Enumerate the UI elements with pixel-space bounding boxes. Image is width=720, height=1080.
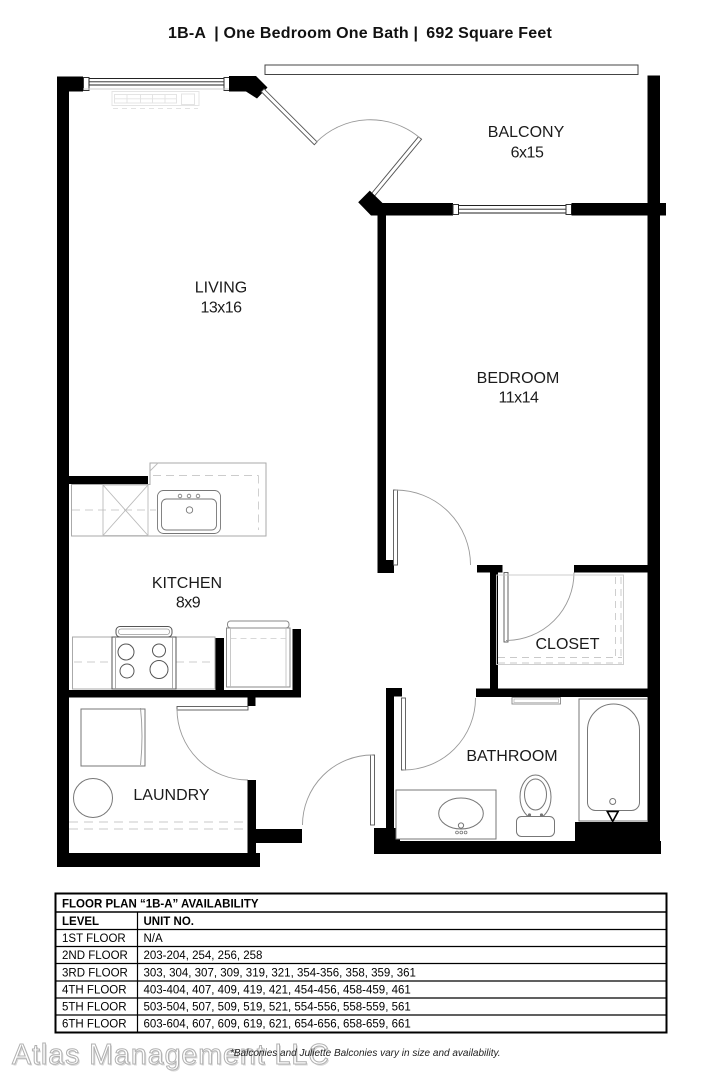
svg-text:UNIT NO.: UNIT NO. <box>144 916 194 928</box>
svg-text:603-604, 607, 609, 619, 621, 6: 603-604, 607, 609, 619, 621, 654-656, 65… <box>144 1019 411 1031</box>
svg-text:*Balconies and Juliette Balcon: *Balconies and Juliette Balconies vary i… <box>230 1048 501 1059</box>
svg-text:LAUNDRY: LAUNDRY <box>133 787 210 804</box>
svg-text:2ND FLOOR: 2ND FLOOR <box>62 950 128 962</box>
svg-text:BALCONY: BALCONY <box>488 124 565 141</box>
svg-text:LEVEL: LEVEL <box>62 916 99 928</box>
svg-text:503-504, 507, 509, 519, 521, 5: 503-504, 507, 509, 519, 521, 554-556, 55… <box>144 1002 411 1014</box>
svg-text:203-204, 254, 256, 258: 203-204, 254, 256, 258 <box>144 950 263 962</box>
svg-text:1B-A | One Bedroom One Bath |: 1B-A | One Bedroom One Bath | 692 Square… <box>168 25 552 42</box>
svg-text:FLOOR PLAN “1B-A” AVAILABILITY: FLOOR PLAN “1B-A” AVAILABILITY <box>62 899 259 911</box>
svg-text:11x14: 11x14 <box>499 390 540 407</box>
svg-text:8x9: 8x9 <box>176 595 201 612</box>
svg-text:5TH FLOOR: 5TH FLOOR <box>62 1002 127 1014</box>
svg-text:KITCHEN: KITCHEN <box>152 575 222 592</box>
svg-text:403-404, 407, 409, 419, 421, 4: 403-404, 407, 409, 419, 421, 454-456, 45… <box>144 985 411 997</box>
svg-text:4TH FLOOR: 4TH FLOOR <box>62 985 127 997</box>
svg-text:BATHROOM: BATHROOM <box>466 748 557 765</box>
svg-text:6TH FLOOR: 6TH FLOOR <box>62 1019 127 1031</box>
svg-text:303, 304, 307, 309, 319, 321,: 303, 304, 307, 309, 319, 321, 354-356, 3… <box>144 968 416 980</box>
svg-text:6x15: 6x15 <box>511 145 544 162</box>
svg-text:3RD FLOOR: 3RD FLOOR <box>62 968 128 980</box>
svg-text:CLOSET: CLOSET <box>535 636 599 653</box>
svg-text:13x16: 13x16 <box>200 300 242 317</box>
svg-text:LIVING: LIVING <box>195 280 247 297</box>
svg-text:1ST FLOOR: 1ST FLOOR <box>62 933 126 945</box>
svg-text:N/A: N/A <box>144 933 164 945</box>
svg-text:BEDROOM: BEDROOM <box>477 370 560 387</box>
